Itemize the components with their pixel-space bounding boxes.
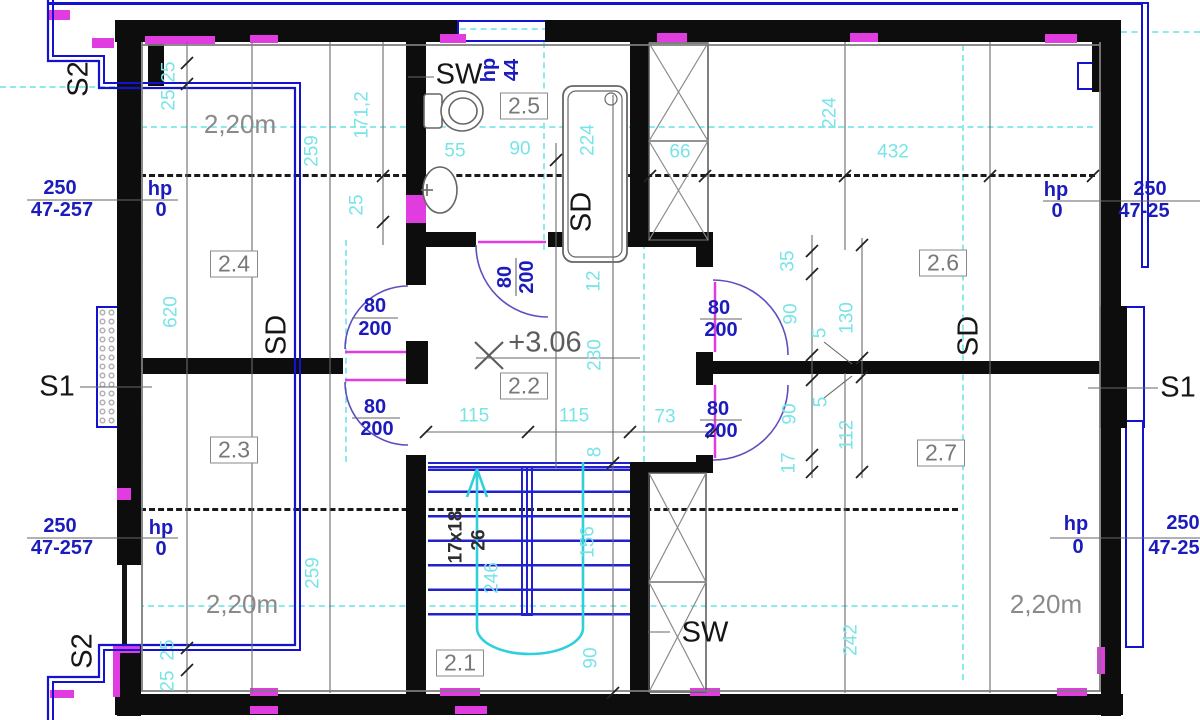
door-size-label: 200 [517,260,537,293]
room-label: 2.6 [919,250,967,277]
dim-label: 224 [579,124,598,156]
dim-label: 90 [781,403,800,424]
dim-label: 130 [838,302,857,334]
room-label: 2.1 [436,650,484,677]
dim-label: 66 [669,143,690,162]
room-label: 2.2 [500,373,548,400]
dimension-tick [644,170,656,182]
window-label: 47-25 [1118,201,1169,221]
parapet-label: 44 [502,59,522,81]
stair-going-label: 26 [470,529,489,550]
dim-label: 25 [348,194,367,215]
window-label: 250 [43,178,76,198]
sw-label: SW [682,619,729,648]
window-label: 47-25 [1148,538,1199,558]
dim-label: 115 [459,407,489,426]
window-label: 47-257 [31,538,93,558]
bathtub [563,86,627,262]
headroom-label: 2,20m [1010,591,1082,617]
level-marker: +3.06 [508,329,581,358]
sw-label: SW [436,61,483,90]
parapet-label: hp [1064,514,1088,534]
door-size-label: 200 [358,319,391,339]
dim-label: 35 [779,250,798,271]
sd-label: SD [955,316,984,356]
dimension-tick [1087,170,1099,182]
sd-label: SD [568,192,597,232]
dimension-tick [699,170,711,182]
shaft-bottom [649,473,706,692]
dim-label: 242 [842,624,861,656]
level-x-mark [475,342,503,369]
sd-label: SD [263,315,292,355]
door-size-label: 80 [708,298,730,318]
dim-label: 8 [586,447,605,458]
dim-label: 156 [579,526,598,558]
headroom-label: 2,20m [206,591,278,617]
section-s2-label: S2 [65,61,94,96]
parapet-label: 0 [1051,201,1062,221]
window-label: 47-257 [31,200,93,220]
dim-label: 25 [160,61,179,82]
parapet-label: hp [1044,180,1068,200]
dim-label: 5 [812,397,831,408]
dim-label: 259 [304,557,323,589]
dim-label: 73 [654,408,675,427]
sink [421,167,457,213]
dim-label: 90 [509,140,530,159]
dim-label: 171,2 [353,91,372,139]
parapet-label: 0 [155,539,166,559]
room-label: 2.7 [917,440,965,467]
dim-label: 432 [877,143,909,162]
room-label: 2.3 [210,437,258,464]
door-size-label: 200 [704,421,737,441]
room-label: 2.5 [500,93,548,120]
dim-label: 246 [483,562,502,594]
window-label: 250 [1166,513,1199,533]
dim-label: 230 [586,339,605,371]
dim-label: 90 [582,647,601,668]
dim-label: 12 [585,270,604,291]
door-size-label: 200 [704,320,737,340]
dim-label: 25 [159,639,178,660]
door-size-label: 80 [707,399,729,419]
door-size-label: 200 [360,419,393,439]
door-size-label: 80 [364,296,386,316]
toilet [424,91,483,131]
stair-walkline [467,462,583,654]
dim-label: 112 [838,420,857,450]
section-s1-label: S1 [39,373,74,402]
dim-label: 224 [821,97,840,129]
dim-label: 25 [159,670,178,691]
dim-label: 90 [782,303,801,324]
room-label: 2.4 [210,251,258,278]
dim-label: 5 [811,328,830,339]
headroom-label: 2,20m [204,111,276,137]
floor-plan: 2525171,22525962025925255590224662244321… [0,0,1200,720]
window-label: 250 [43,516,76,536]
section-s1-label: S1 [1160,374,1195,403]
parapet-label: hp [148,179,172,199]
section-s2-label: S2 [69,633,98,668]
parapet-label: 0 [155,200,166,220]
dim-label: 17 [780,452,799,473]
parapet-label: hp [479,58,499,82]
door-size-label: 80 [495,266,515,288]
window-label: 250 [1133,179,1166,199]
dim-label: 115 [559,407,589,426]
dim-label: 620 [162,296,181,328]
stair-riser-label: 17x18 [447,511,466,564]
door-size-label: 80 [364,397,386,417]
dim-label: 25 [160,89,179,110]
parapet-label: hp [149,518,173,538]
dim-label: 259 [303,135,322,167]
parapet-label: 0 [1072,537,1083,557]
dim-label: 55 [444,142,465,161]
